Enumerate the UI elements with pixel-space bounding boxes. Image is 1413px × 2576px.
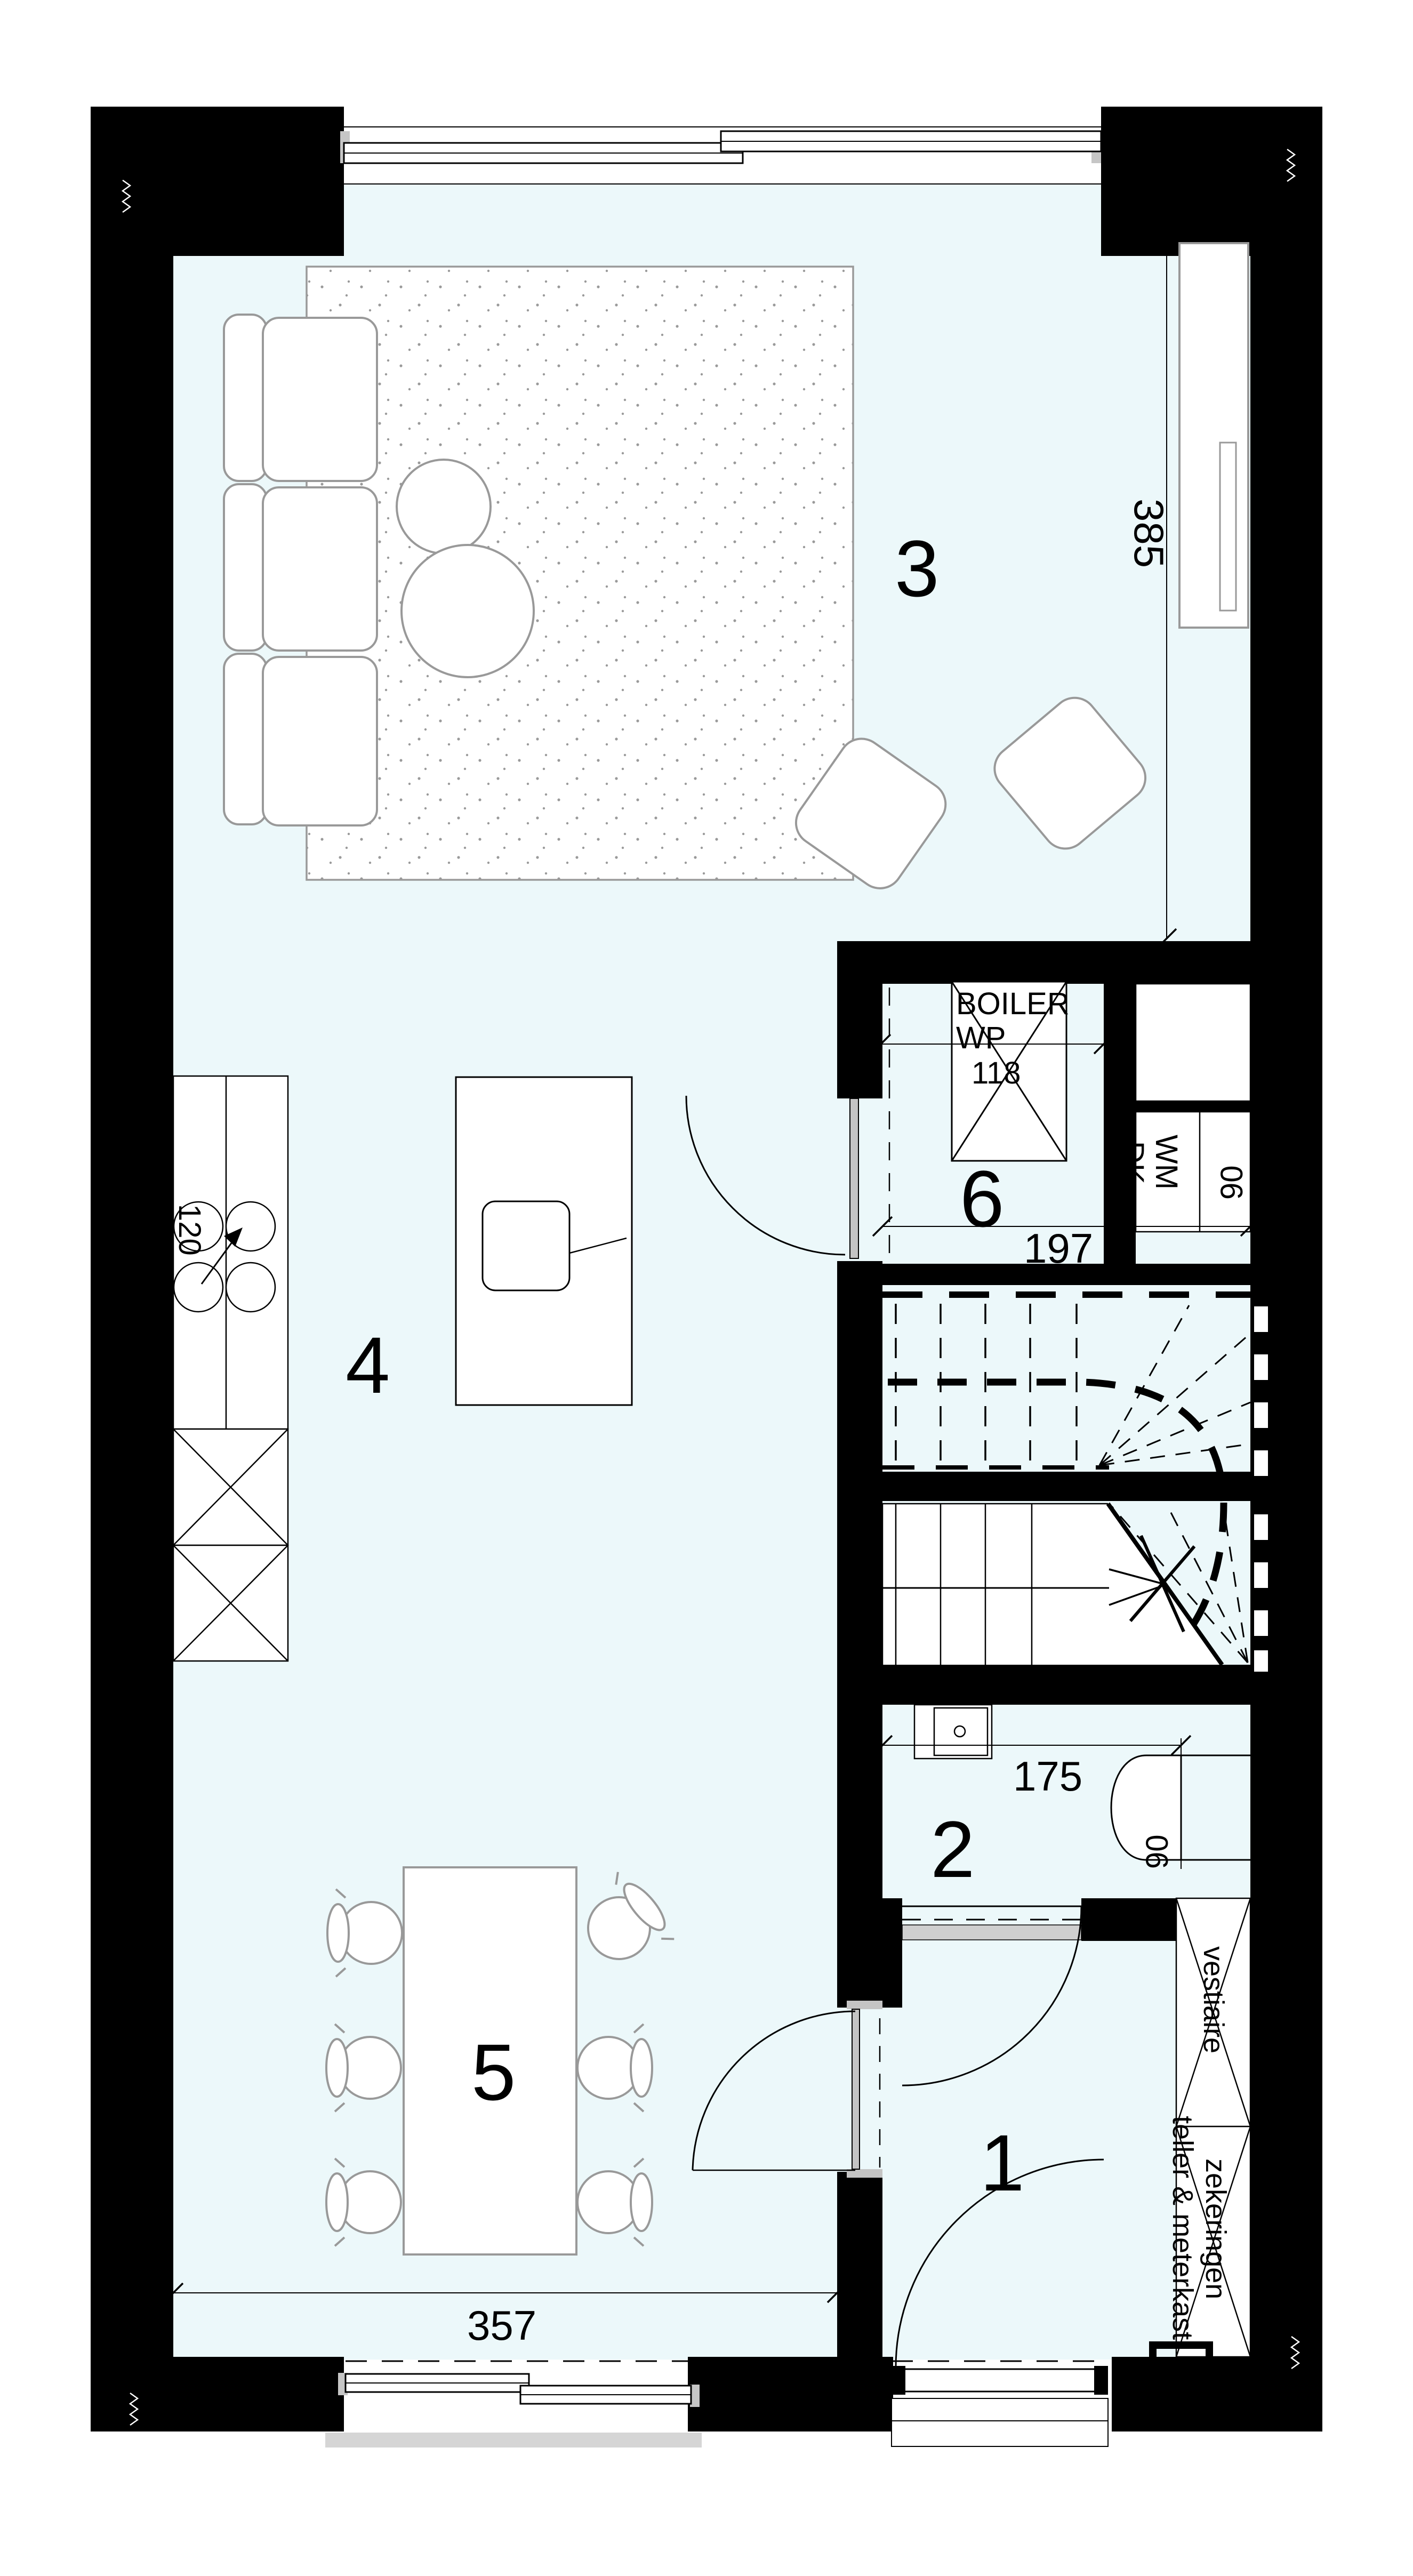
floor-plan: DK WM 90	[0, 0, 1413, 2576]
room-label-toilet: 2	[930, 1804, 975, 1894]
wardrobe-label: vestiaire	[1198, 1946, 1230, 2053]
dishwasher-label: DK	[1115, 1141, 1150, 1184]
room-label-kitchen: 4	[346, 1320, 390, 1410]
dim-toilet-width-text: 175	[1013, 1753, 1082, 1800]
room-label-living: 3	[895, 524, 939, 613]
dim-cabinet-text: 385	[1126, 499, 1173, 568]
coffee-table-small	[397, 460, 491, 553]
appliance-width-dim: 90	[1215, 1165, 1249, 1200]
room-label-utility: 6	[960, 1154, 1004, 1243]
washbasin	[914, 1705, 992, 1759]
dim-toilet-depth-text: 90	[1140, 1834, 1175, 1869]
meter-label-1: teller & meterkast	[1167, 2116, 1199, 2340]
wall-cabinet	[1179, 243, 1248, 628]
washing-machine-label: WM	[1149, 1135, 1184, 1190]
sofa	[224, 315, 377, 825]
meter-label-2: zekeringen	[1200, 2158, 1232, 2299]
boiler-label-1: BOILER	[956, 986, 1070, 1021]
island-sink	[483, 1201, 569, 1290]
room-label-hall: 1	[980, 2118, 1024, 2208]
room-label-dining: 5	[471, 2027, 516, 2117]
boiler-label-2: WP	[956, 1021, 1006, 1055]
kitchen-island	[456, 1077, 632, 1405]
dim-living-width-text: 357	[467, 2302, 536, 2349]
rug	[307, 267, 853, 880]
coffee-table-large	[402, 545, 534, 677]
dim-boiler-text: 118	[972, 1056, 1021, 1090]
dim-utility-text: 197	[1024, 1225, 1093, 1272]
kitchen-counter	[173, 1076, 288, 1661]
dim-counter-text: 120	[172, 1204, 207, 1256]
